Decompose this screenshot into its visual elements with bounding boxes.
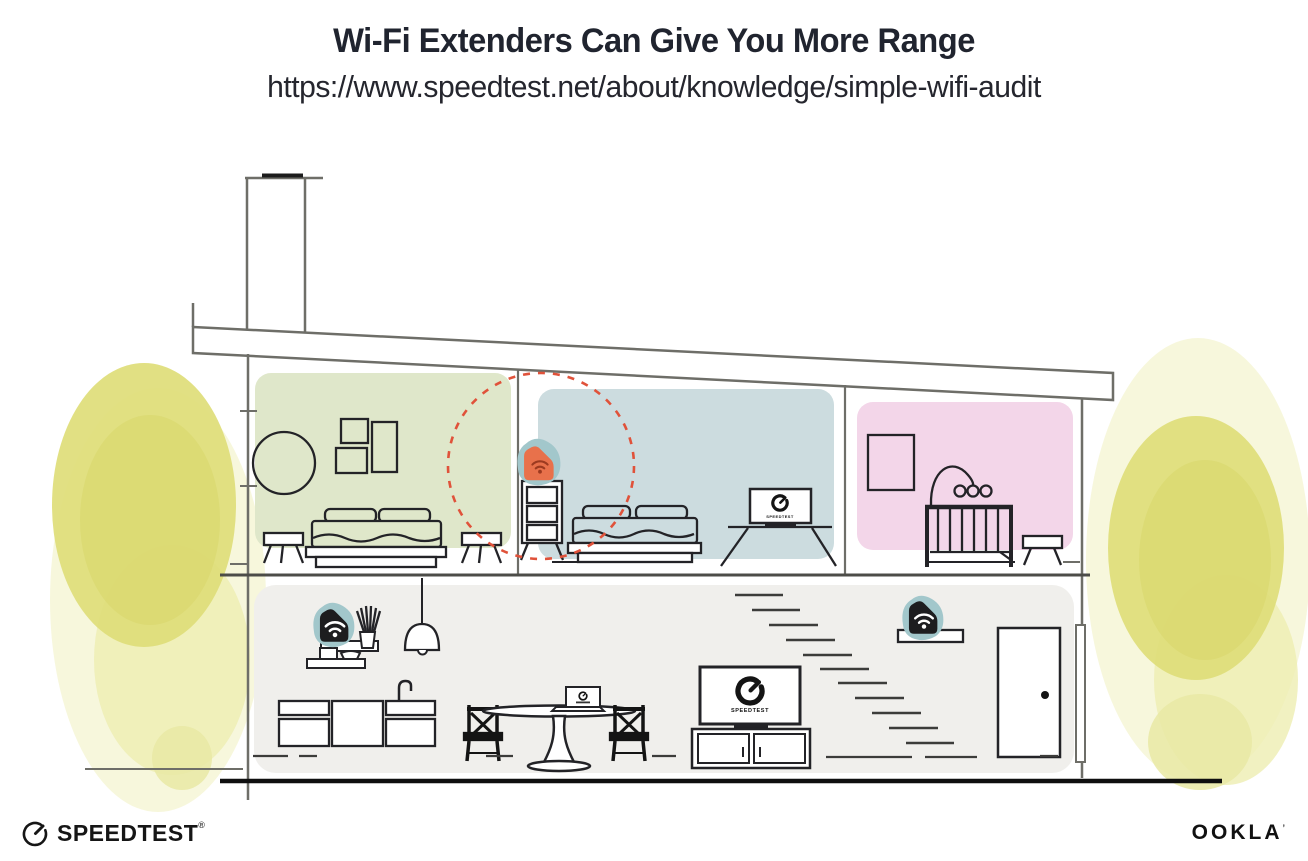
door [998,628,1060,757]
room-nursery [857,402,1073,550]
tree-left [50,363,266,812]
tv-upstairs-label: SPEEDTEST [766,514,794,519]
tv-ground-label: SPEEDTEST [731,708,769,714]
tv-upstairs: SPEEDTEST [750,489,811,527]
chimney [245,176,323,334]
page-title: Wi-Fi Extenders Can Give You More Range [26,22,1282,61]
tv-ground: SPEEDTEST [700,667,800,729]
speedtest-logo: SPEEDTEST® [22,820,205,847]
tree-right [1086,338,1308,790]
tv-console [692,729,810,768]
house-illustration: SPEEDTEST [0,0,1308,861]
source-url: https://www.speedtest.net/about/knowledg… [20,69,1289,105]
door-knob [1041,691,1049,699]
drainpipe [1076,625,1085,762]
nightstand-left [264,533,303,563]
header: Wi-Fi Extenders Can Give You More Range … [0,22,1308,105]
ookla-logo: OOKLA’ [1192,821,1288,845]
infographic-page: { "header": { "title": "Wi-Fi Extenders … [0,0,1308,861]
speedtest-gauge-icon [22,821,48,847]
bed-left [306,509,446,567]
ookla-wordmark: OOKLA’ [1192,821,1288,844]
speedtest-wordmark: SPEEDTEST® [57,820,205,847]
ookla-mark: ’ [1282,823,1288,833]
nursery-stool [1023,536,1062,565]
registered-mark: ® [198,820,205,830]
